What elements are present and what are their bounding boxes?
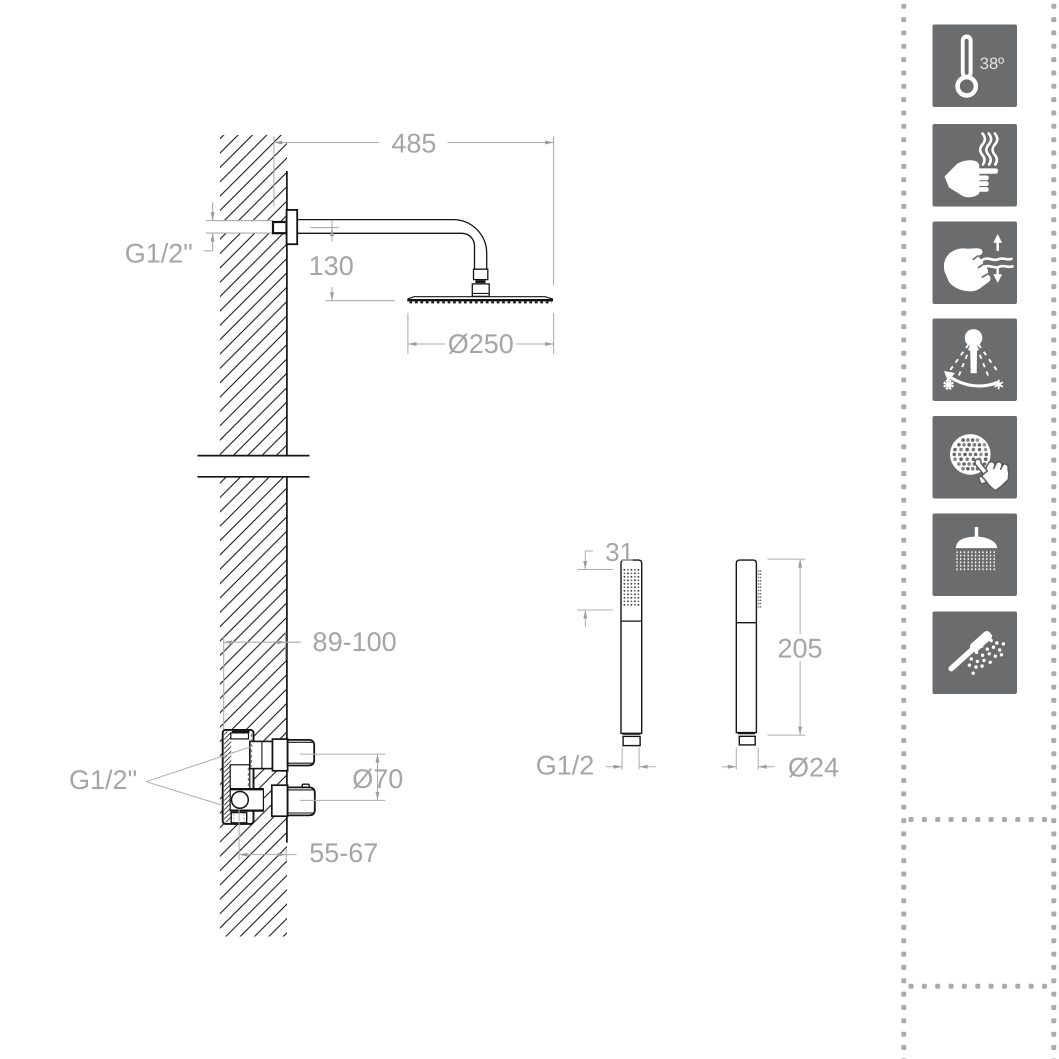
svg-text:485: 485 bbox=[391, 129, 436, 159]
svg-text:Ø24: Ø24 bbox=[788, 753, 839, 783]
svg-text:89-100: 89-100 bbox=[313, 627, 397, 657]
svg-text:130: 130 bbox=[309, 251, 354, 281]
svg-text:Ø250: Ø250 bbox=[448, 329, 514, 359]
svg-text:38º: 38º bbox=[980, 55, 1004, 73]
svg-text:G1/2": G1/2" bbox=[69, 765, 137, 795]
svg-text:G1/2: G1/2 bbox=[536, 751, 595, 781]
svg-text:205: 205 bbox=[777, 634, 822, 664]
svg-text:31: 31 bbox=[605, 537, 634, 567]
svg-text:G1/2": G1/2" bbox=[125, 239, 193, 269]
svg-text:55-67: 55-67 bbox=[309, 838, 378, 868]
svg-text:Ø70: Ø70 bbox=[352, 764, 403, 794]
